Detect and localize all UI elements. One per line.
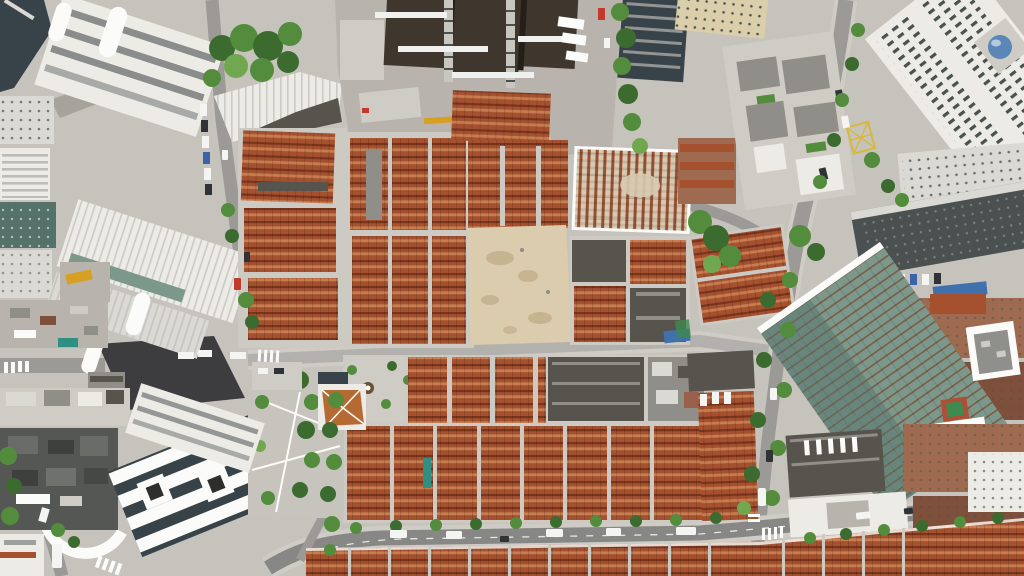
bus: [52, 544, 62, 568]
cleared-lot: [468, 225, 572, 345]
mixed-roof-block: [570, 236, 690, 345]
rooftop-court: [940, 396, 969, 421]
tie-beam: [398, 46, 488, 52]
red-car: [234, 278, 241, 290]
old-town-south: [343, 350, 758, 523]
aerial-photo: [0, 0, 1024, 576]
scaffolded-block: [572, 146, 693, 234]
tie-beam: [375, 12, 447, 18]
rooftop-white-frame: [966, 321, 1021, 381]
tie-beam: [452, 72, 534, 78]
